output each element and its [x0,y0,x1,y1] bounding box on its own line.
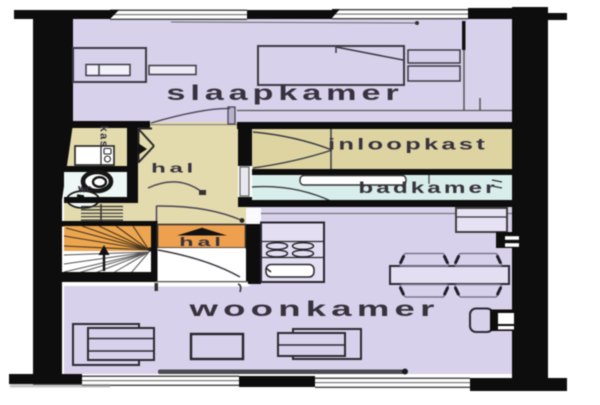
svg-text:slaapkamer: slaapkamer [166,82,403,106]
svg-text:hal: hal [151,162,197,176]
svg-text:inloopkast: inloopkast [328,135,488,153]
svg-text:hal: hal [179,235,224,249]
svg-text:badkamer: badkamer [358,179,497,197]
svg-text:woonkamer: woonkamer [188,298,439,321]
svg-text:wc: wc [77,184,92,195]
